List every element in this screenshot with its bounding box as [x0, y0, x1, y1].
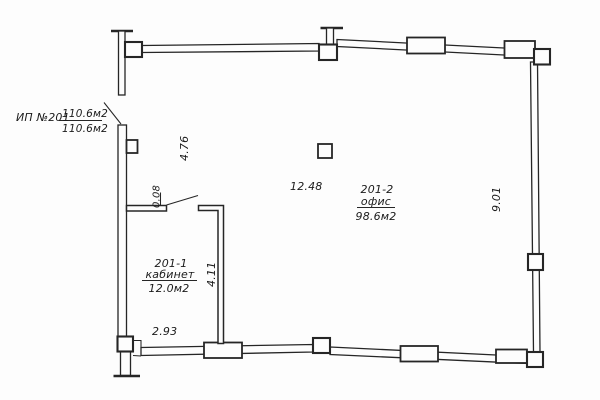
- window-top-1: [407, 38, 445, 54]
- wall-stub-bottom-left: [121, 352, 131, 376]
- bottom-wall-step: [133, 341, 141, 357]
- columns: [118, 42, 551, 367]
- cabinet-room-name: кабинет: [145, 268, 194, 281]
- dim-entry-side: 4.76: [178, 136, 191, 161]
- annotation-lines: [59, 103, 395, 281]
- left-wall-pilaster: [127, 140, 138, 153]
- column-interior-office: [318, 144, 332, 158]
- column-top-right: [534, 49, 550, 65]
- column-bottom-middle: [313, 338, 330, 353]
- dim-cabinet-depth: 4.11: [205, 262, 218, 287]
- top-wall-left-segment: [142, 44, 319, 53]
- dim-office-depth: 9.01: [490, 187, 503, 212]
- column-top-left: [125, 42, 142, 57]
- column-bottom-left: [118, 337, 134, 352]
- column-top-middle: [319, 45, 337, 61]
- unit-area-denominator: 110.6м2: [62, 123, 108, 135]
- office-room-name: офис: [361, 195, 391, 208]
- scanned-floor-plan: ИП №201 110.6м2 110.6м2 4.76 0.08 12.48 …: [0, 0, 600, 400]
- office-room-area: 98.6м2: [356, 210, 397, 223]
- unit-area-numerator: 110.6м2: [62, 108, 108, 120]
- right-wall: [531, 62, 541, 352]
- window-top-2: [505, 41, 536, 58]
- window-bottom-1: [204, 343, 242, 359]
- wall-stub-top-left: [119, 31, 126, 95]
- cabinet-room-area: 12.0м2: [149, 282, 190, 295]
- window-bottom-3: [496, 350, 527, 364]
- dim-cabinet-width: 2.93: [152, 325, 177, 338]
- column-right-middle: [528, 254, 543, 270]
- floor-plan-canvas: ИП №201 110.6м2 110.6м2 4.76 0.08 12.48 …: [0, 0, 600, 400]
- column-bottom-right: [527, 352, 543, 367]
- labels: ИП №201 110.6м2 110.6м2 4.76 0.08 12.48 …: [16, 108, 503, 338]
- dim-office-width: 12.48: [290, 180, 323, 193]
- dim-partition-offset: 0.08: [152, 185, 163, 208]
- window-bottom-2: [401, 346, 439, 362]
- left-wall: [118, 125, 127, 338]
- door-leaf-line: [167, 196, 199, 206]
- wall-stub-top-middle: [327, 28, 334, 45]
